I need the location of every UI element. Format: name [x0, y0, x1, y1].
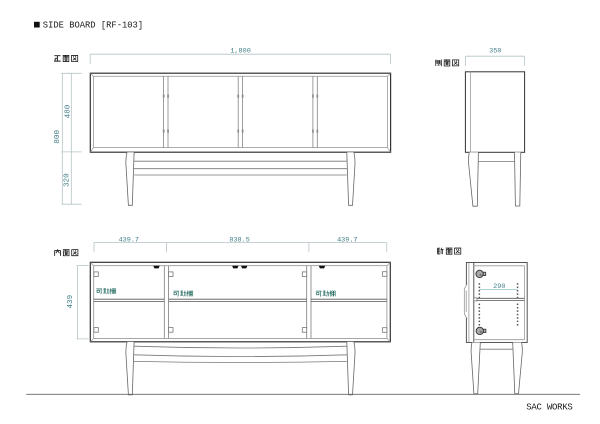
svg-text:838.5: 838.5	[229, 237, 249, 245]
svg-text:439: 439	[67, 294, 75, 308]
svg-text:350: 350	[489, 48, 501, 56]
svg-text:SAC WORKS: SAC WORKS	[526, 402, 572, 412]
svg-text:1,800: 1,800	[230, 48, 250, 56]
svg-text:800: 800	[54, 130, 62, 144]
svg-text:290: 290	[493, 283, 505, 291]
svg-text:439.7: 439.7	[119, 237, 139, 245]
svg-text:480: 480	[64, 104, 72, 118]
svg-text:SIDE BOARD [RF-103]: SIDE BOARD [RF-103]	[43, 21, 143, 31]
svg-text:439.7: 439.7	[337, 237, 357, 245]
svg-text:320: 320	[63, 173, 71, 187]
